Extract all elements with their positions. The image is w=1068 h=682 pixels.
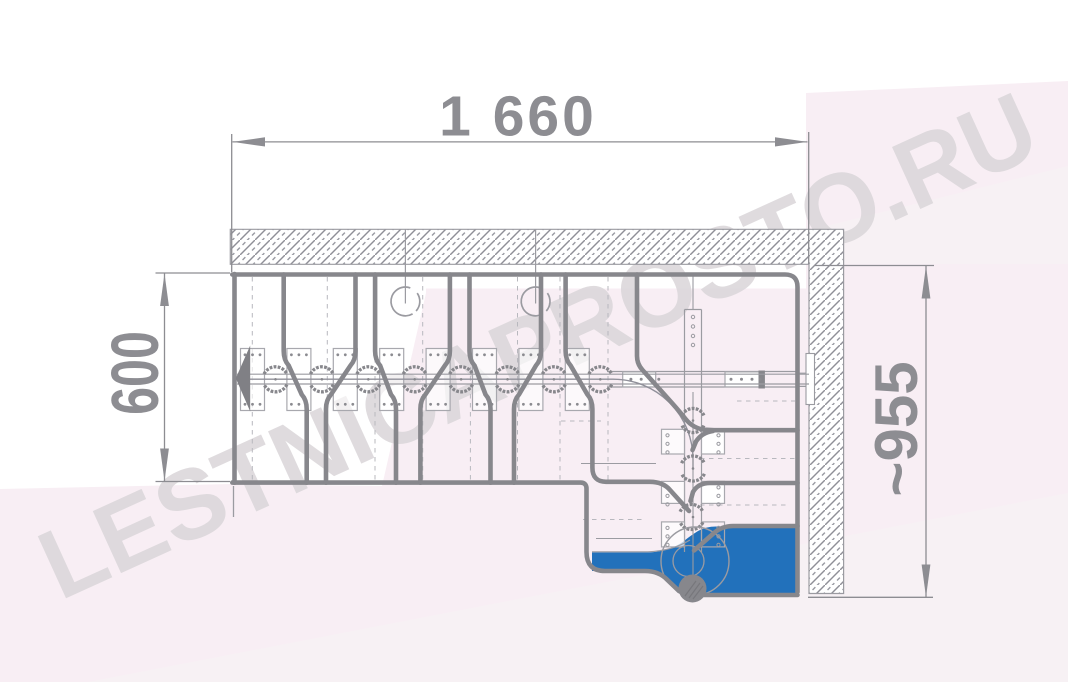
svg-text:~955: ~955 (863, 361, 930, 496)
svg-text:1 660: 1 660 (439, 85, 597, 149)
svg-text:600: 600 (97, 331, 173, 415)
